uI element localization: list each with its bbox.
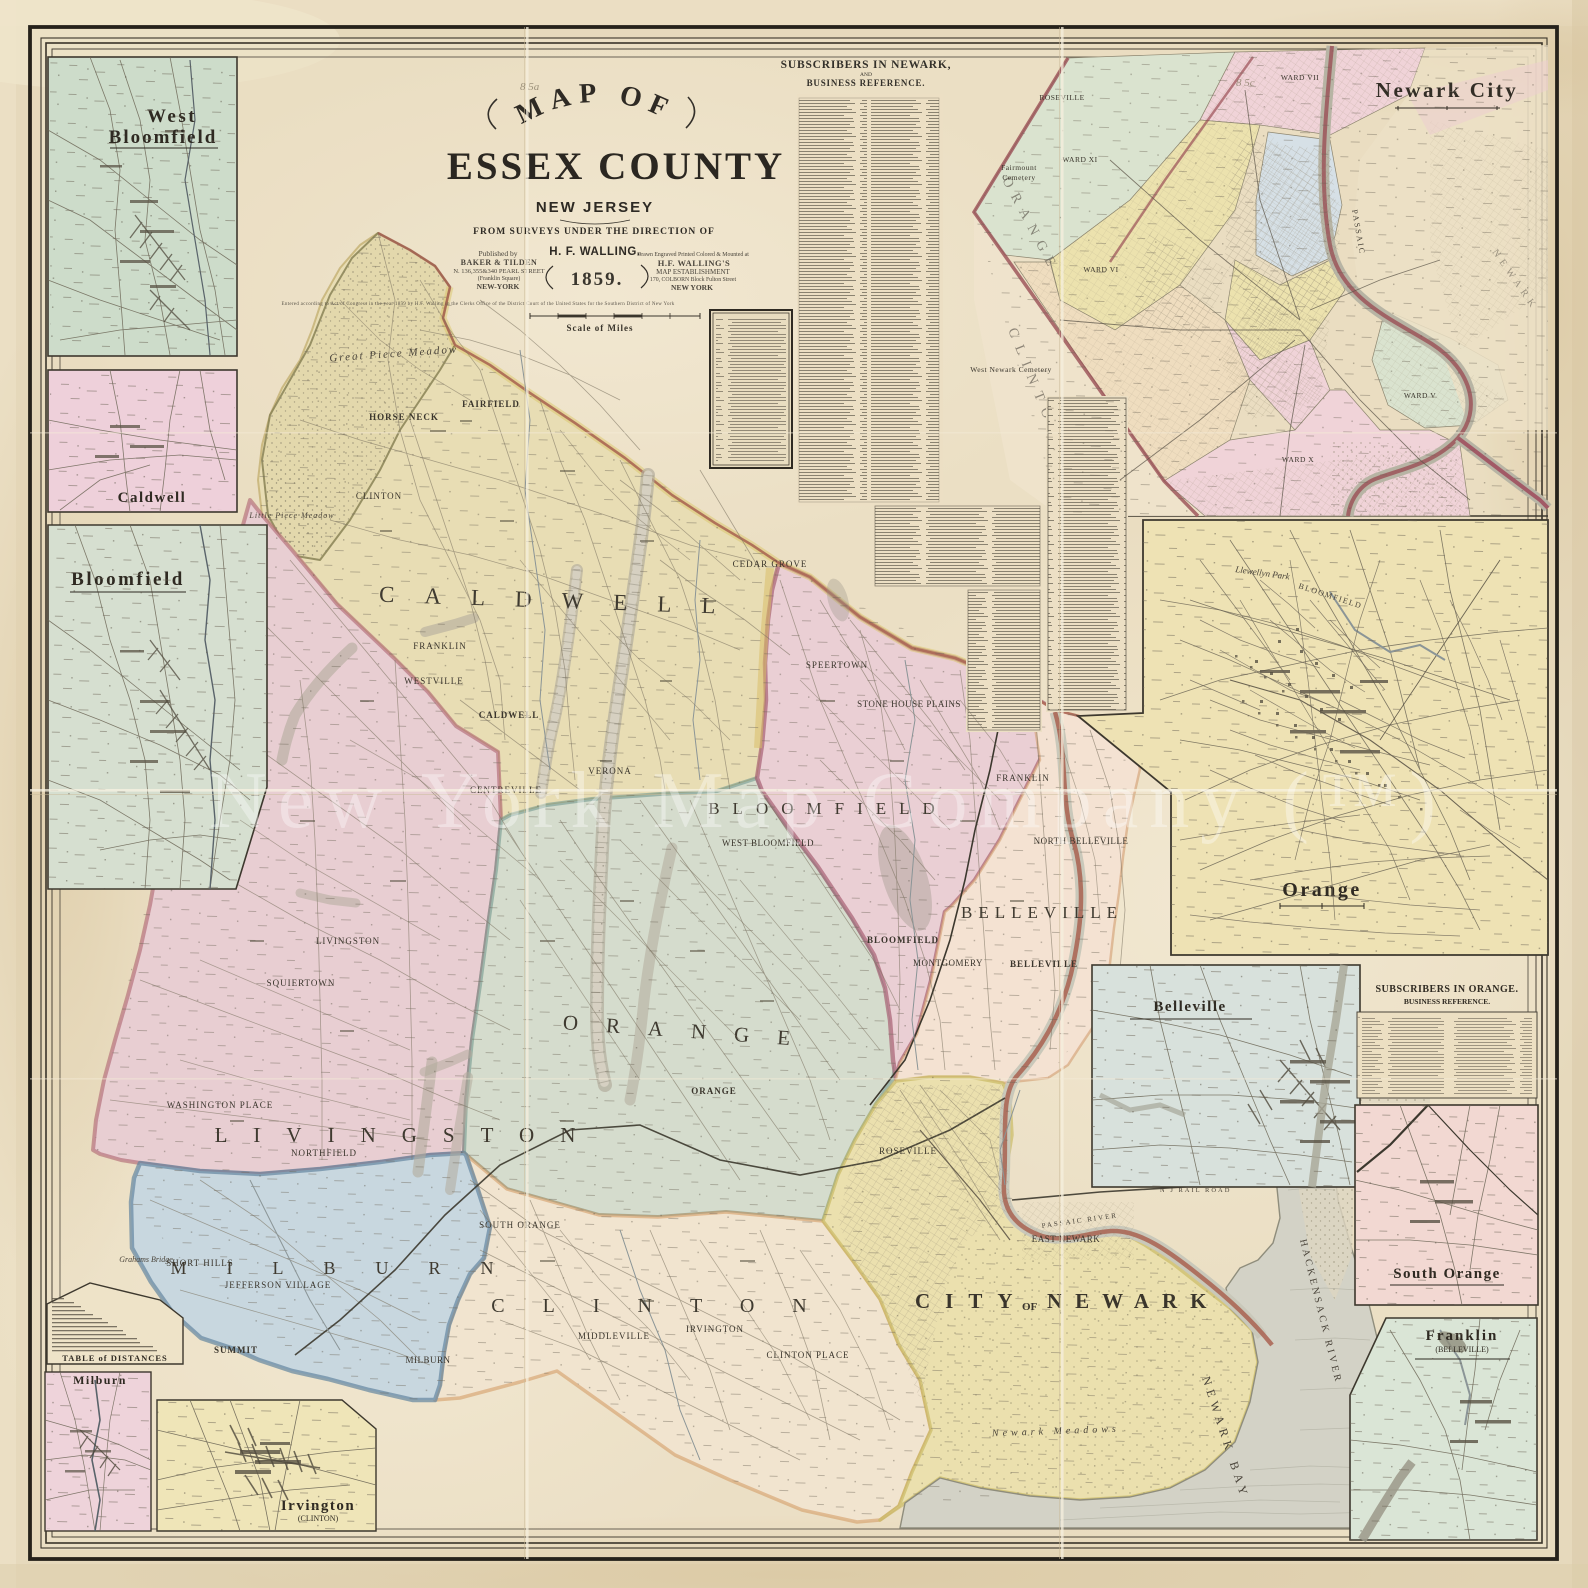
svg-text:WASHINGTON PLACE: WASHINGTON PLACE <box>167 1100 274 1110</box>
svg-text:CLINTON: CLINTON <box>491 1295 844 1317</box>
svg-text:BUSINESS REFERENCE.: BUSINESS REFERENCE. <box>1404 997 1490 1006</box>
svg-text:8 5a: 8 5a <box>520 81 540 93</box>
svg-text:SOUTH ORANGE: SOUTH ORANGE <box>479 1220 561 1230</box>
svg-text:NEW-YORK: NEW-YORK <box>477 282 520 291</box>
svg-text:NEW YORK: NEW YORK <box>671 283 713 292</box>
svg-text:BELLEVILLE: BELLEVILLE <box>1010 959 1078 969</box>
svg-text:N. 136,355&340 PEARL STREET: N. 136,355&340 PEARL STREET <box>453 268 544 275</box>
svg-text:CALDWELL: CALDWELL <box>479 710 540 720</box>
svg-text:OF: OF <box>1022 1301 1038 1313</box>
svg-text:NEW JERSEY: NEW JERSEY <box>536 199 654 216</box>
svg-text:NORTHFIELD: NORTHFIELD <box>291 1148 357 1158</box>
svg-text:ESSEX COUNTY: ESSEX COUNTY <box>447 145 785 188</box>
svg-text:CLINTON: CLINTON <box>356 491 402 501</box>
svg-text:8 5c: 8 5c <box>1236 77 1255 89</box>
svg-text:New York Map Company (™): New York Map Company (™) <box>209 757 1447 845</box>
svg-text:LIVINGSTON: LIVINGSTON <box>215 1123 602 1147</box>
svg-text:ROSEVILLE: ROSEVILLE <box>879 1146 937 1156</box>
svg-text:SUBSCRIBERS IN NEWARK,: SUBSCRIBERS IN NEWARK, <box>781 59 952 71</box>
svg-text:FROM SURVEYS UNDER THE DIRECTI: FROM SURVEYS UNDER THE DIRECTION OF <box>473 227 715 237</box>
svg-text:Published by: Published by <box>479 249 518 258</box>
svg-text:ORANGE: ORANGE <box>691 1086 737 1096</box>
svg-text:STONE HOUSE PLAINS: STONE HOUSE PLAINS <box>857 699 961 709</box>
svg-text:N J RAIL ROAD: N J RAIL ROAD <box>1160 1187 1231 1194</box>
svg-text:MILBURN: MILBURN <box>405 1355 450 1365</box>
svg-text:Scale of Miles: Scale of Miles <box>567 323 634 333</box>
svg-text:1859.: 1859. <box>571 269 624 290</box>
svg-text:EAST NEWARK: EAST NEWARK <box>1032 1234 1101 1244</box>
svg-text:CEDAR GROVE: CEDAR GROVE <box>733 559 808 569</box>
svg-text:BLOOMFIELD: BLOOMFIELD <box>867 935 939 945</box>
svg-text:MIDDLEVILLE: MIDDLEVILLE <box>578 1331 650 1341</box>
svg-text:SUMMIT: SUMMIT <box>214 1345 258 1355</box>
svg-text:(Franklin Square): (Franklin Square) <box>478 275 521 282</box>
svg-text:SUBSCRIBERS IN ORANGE.: SUBSCRIBERS IN ORANGE. <box>1376 984 1519 995</box>
svg-text:WESTVILLE: WESTVILLE <box>404 676 463 686</box>
svg-text:BUSINESS REFERENCE.: BUSINESS REFERENCE. <box>807 78 926 88</box>
svg-text:HORSE NECK: HORSE NECK <box>369 412 439 422</box>
svg-text:SQUIERTOWN: SQUIERTOWN <box>267 978 336 988</box>
svg-text:Entered according to Act of Co: Entered according to Act of Congress in … <box>281 302 674 307</box>
svg-text:MAP ESTABLISHMENT: MAP ESTABLISHMENT <box>656 268 730 276</box>
svg-text:Little Piece Meadow: Little Piece Meadow <box>248 511 334 520</box>
svg-text:MONTGOMERY: MONTGOMERY <box>913 958 983 968</box>
svg-text:CITY: CITY <box>915 1289 1028 1313</box>
svg-text:TABLE of DISTANCES: TABLE of DISTANCES <box>62 1353 168 1363</box>
svg-text:FRANKLIN: FRANKLIN <box>413 641 467 651</box>
svg-text:IRVINGTON: IRVINGTON <box>686 1324 744 1334</box>
svg-text:Grahams Bridge: Grahams Bridge <box>119 1255 173 1264</box>
svg-text:NEWARK: NEWARK <box>1047 1289 1220 1313</box>
svg-text:JEFFERSON VILLAGE: JEFFERSON VILLAGE <box>225 1280 332 1290</box>
svg-text:LIVINGSTON: LIVINGSTON <box>316 936 380 946</box>
svg-text:SHORT HILLS: SHORT HILLS <box>166 1258 234 1268</box>
svg-text:H. F. WALLING.: H. F. WALLING. <box>549 246 640 258</box>
svg-text:H.F. WALLING'S: H.F. WALLING'S <box>658 258 730 268</box>
svg-text:BAKER & TILDEN: BAKER & TILDEN <box>461 258 538 267</box>
svg-text:SPEERTOWN: SPEERTOWN <box>806 660 868 670</box>
svg-text:FAIRFIELD: FAIRFIELD <box>462 399 520 409</box>
